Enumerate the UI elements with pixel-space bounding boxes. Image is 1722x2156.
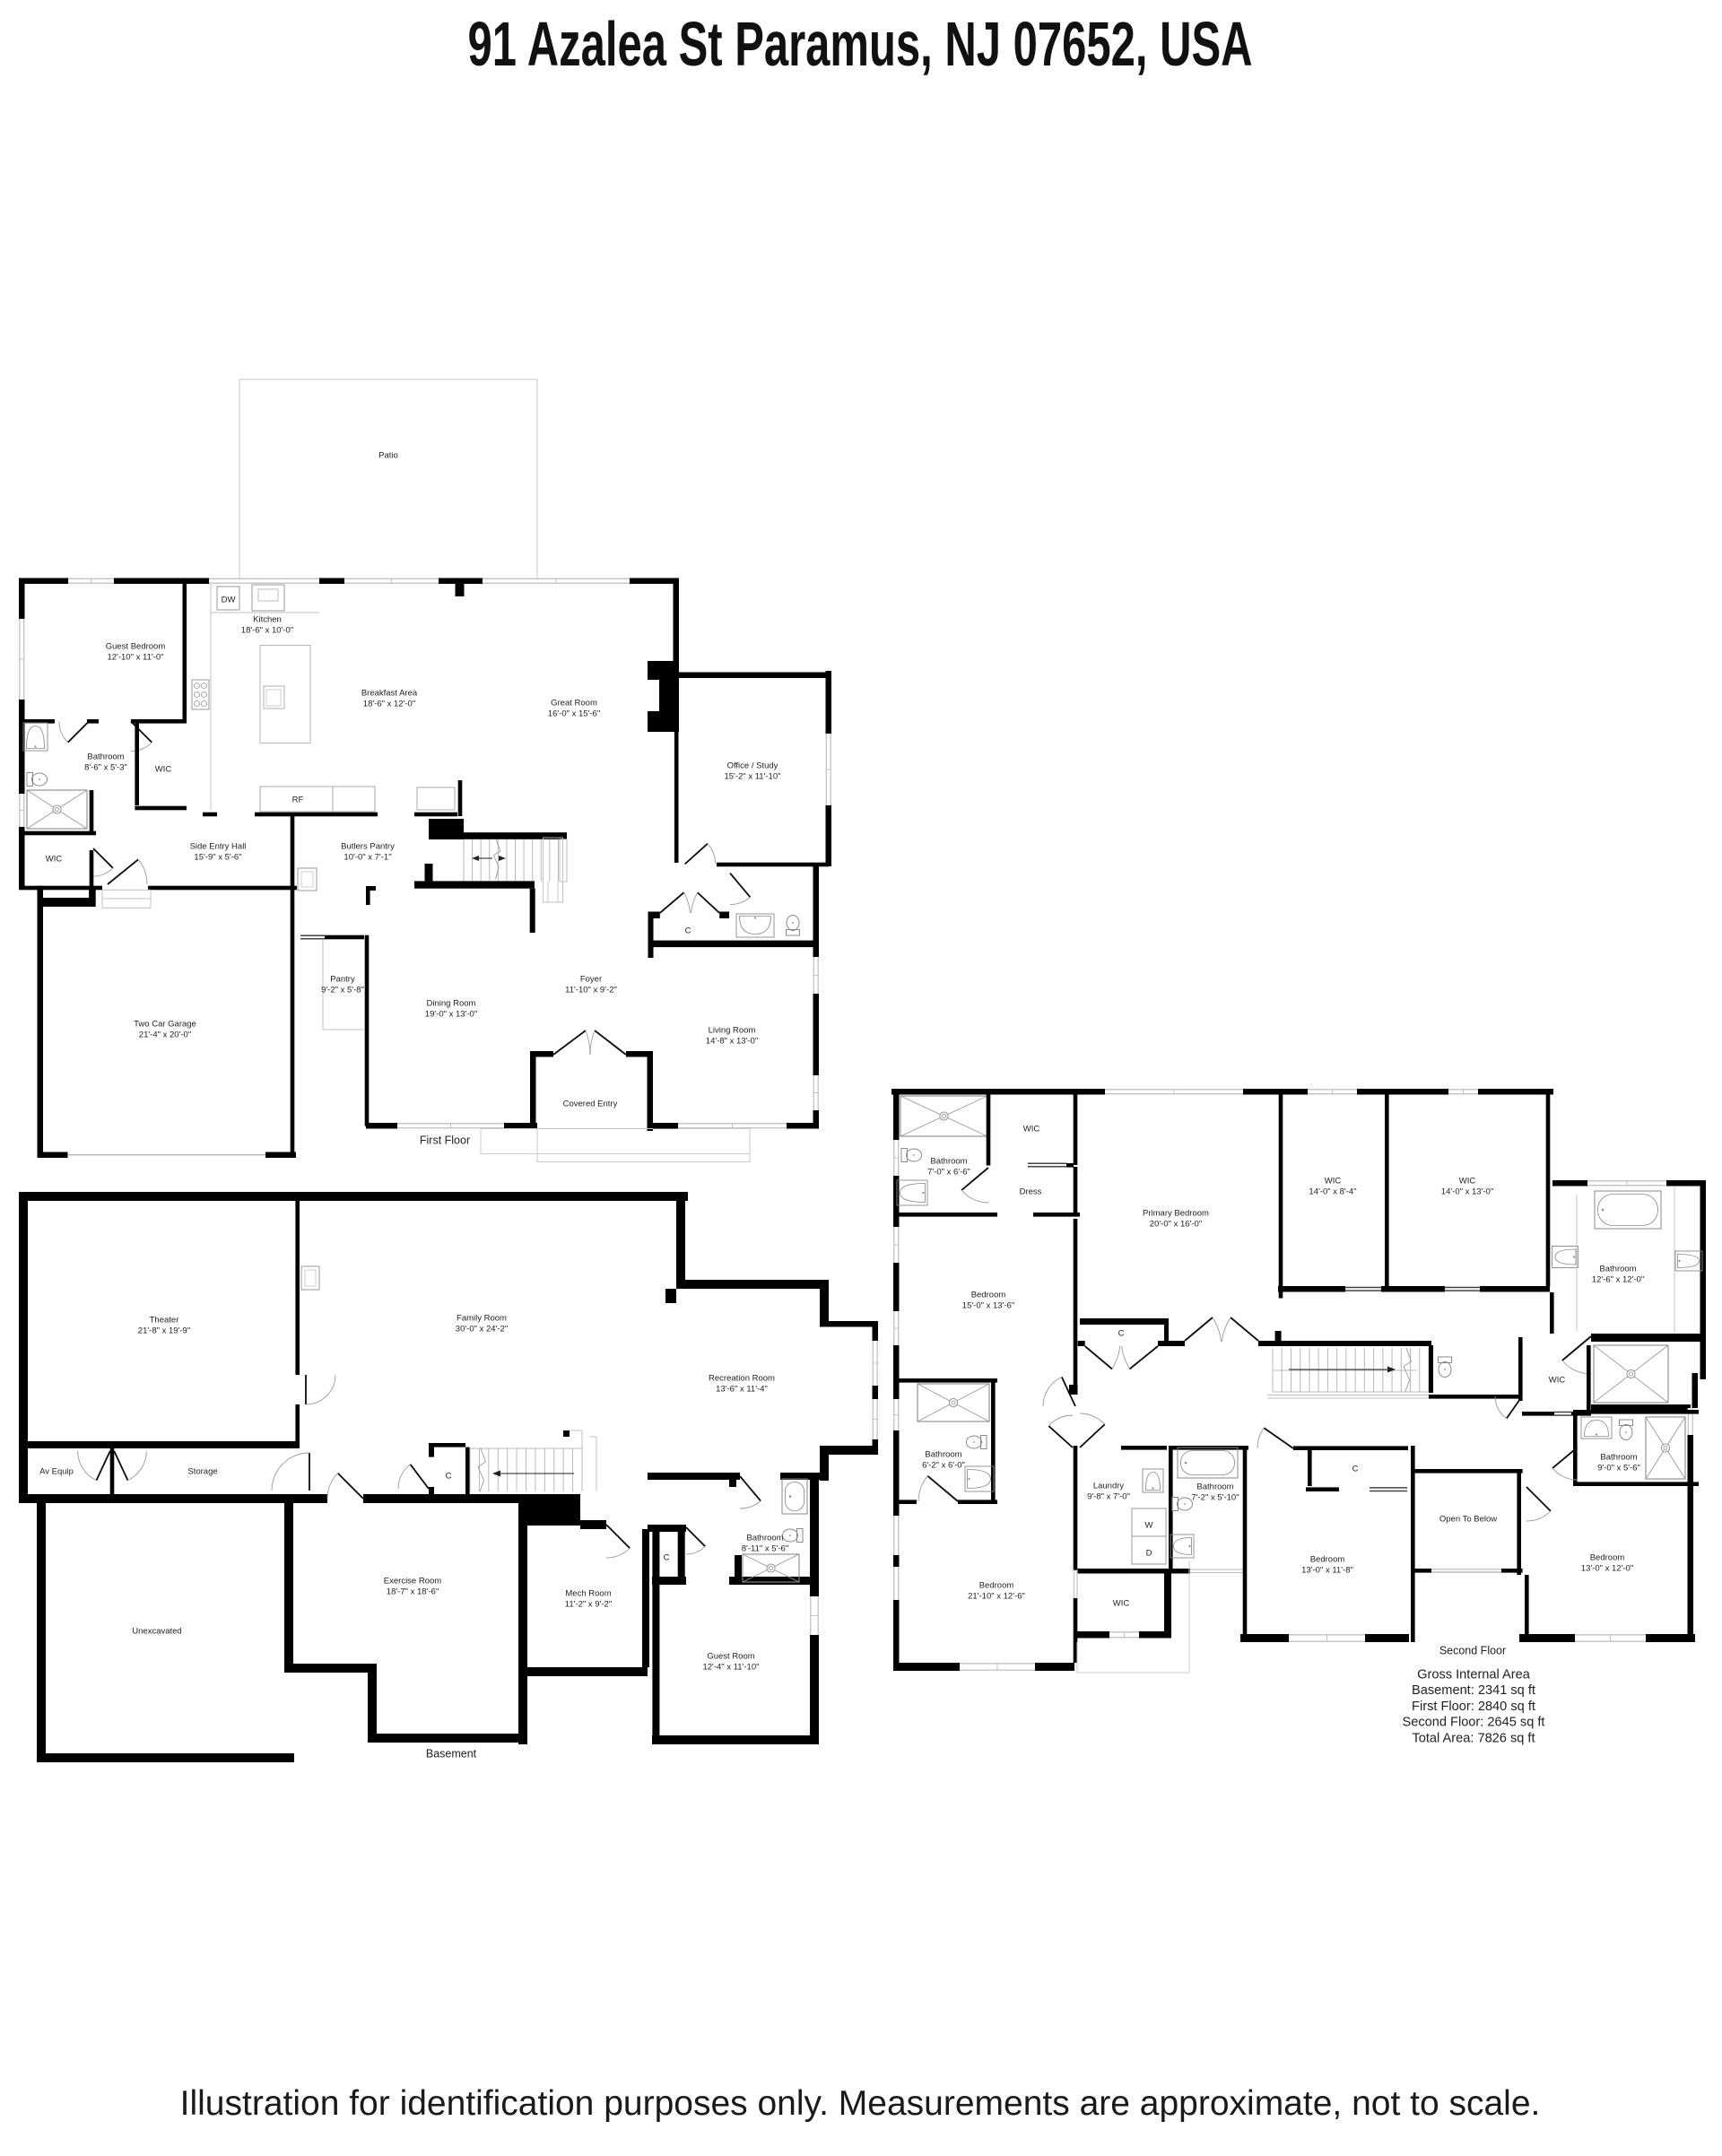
svg-text:Bathroom: Bathroom [1600, 1452, 1637, 1462]
svg-text:Bathroom: Bathroom [925, 1449, 961, 1459]
svg-text:Bathroom: Bathroom [930, 1156, 967, 1166]
svg-text:Bedroom: Bedroom [971, 1290, 1006, 1300]
svg-text:11'-2" x 9'-2": 11'-2" x 9'-2" [565, 1600, 612, 1610]
svg-text:Illustration for identificatio: Illustration for identification purposes… [180, 2084, 1541, 2123]
svg-text:18'-7" x 18'-6": 18'-7" x 18'-6" [387, 1587, 439, 1597]
svg-text:21'-8" x 19'-9": 21'-8" x 19'-9" [138, 1326, 190, 1336]
svg-text:Office / Study: Office / Study [727, 761, 778, 770]
svg-text:Second Floor: Second Floor [1439, 1644, 1506, 1656]
svg-text:Bedroom: Bedroom [979, 1580, 1014, 1590]
svg-text:Great Room: Great Room [551, 698, 597, 708]
svg-text:WIC: WIC [1549, 1375, 1566, 1385]
svg-text:10'-0" x 7'-1": 10'-0" x 7'-1" [344, 853, 391, 863]
svg-text:Primary Bedroom: Primary Bedroom [1143, 1208, 1209, 1218]
svg-text:WIC: WIC [1113, 1598, 1130, 1608]
svg-text:Pantry: Pantry [330, 974, 355, 984]
svg-text:Laundry: Laundry [1093, 1481, 1125, 1491]
svg-text:Breakfast Area: Breakfast Area [361, 688, 418, 698]
svg-text:8'-6" x 5'-3": 8'-6" x 5'-3" [84, 763, 127, 773]
svg-text:21'-10" x 12'-6": 21'-10" x 12'-6" [968, 1592, 1025, 1602]
svg-text:C: C [446, 1471, 452, 1481]
svg-text:16'-0" x 15'-6": 16'-0" x 15'-6" [548, 709, 600, 719]
svg-text:14'-0" x 8'-4": 14'-0" x 8'-4" [1309, 1187, 1356, 1197]
svg-text:WIC: WIC [155, 764, 172, 774]
svg-text:9'-0" x 5'-6": 9'-0" x 5'-6" [1597, 1464, 1640, 1474]
svg-text:12'-4" x 11'-10": 12'-4" x 11'-10" [702, 1663, 759, 1673]
svg-text:Covered Entry: Covered Entry [563, 1099, 618, 1108]
svg-text:Patio: Patio [378, 450, 398, 460]
svg-text:Bathroom: Bathroom [1599, 1264, 1636, 1274]
svg-text:9'-8" x 7'-0": 9'-8" x 7'-0" [1087, 1492, 1130, 1502]
svg-text:Bathroom: Bathroom [87, 752, 124, 761]
svg-text:Gross Internal Area: Gross Internal Area [1417, 1668, 1531, 1682]
svg-text:C: C [664, 1552, 670, 1562]
svg-text:21'-4" x 20'-0": 21'-4" x 20'-0" [139, 1030, 191, 1040]
svg-text:Guest Bedroom: Guest Bedroom [106, 641, 166, 651]
svg-text:Second Floor: 2645 sq ft: Second Floor: 2645 sq ft [1402, 1716, 1544, 1730]
svg-text:C: C [685, 926, 691, 935]
svg-text:WIC: WIC [1023, 1124, 1040, 1134]
svg-text:C: C [1118, 1328, 1125, 1338]
svg-text:13'-0" x 11'-8": 13'-0" x 11'-8" [1301, 1566, 1353, 1576]
svg-text:Family Room: Family Room [457, 1313, 507, 1323]
svg-text:RF: RF [292, 795, 304, 804]
svg-text:Av Equip: Av Equip [39, 1466, 74, 1476]
svg-text:12'-6" x 12'-0": 12'-6" x 12'-0" [1592, 1275, 1644, 1285]
svg-text:18'-6" x 10'-0": 18'-6" x 10'-0" [241, 626, 293, 636]
svg-text:Basement: Basement [426, 1747, 477, 1760]
svg-text:13'-6" x 11'-4": 13'-6" x 11'-4" [716, 1385, 768, 1395]
svg-text:Guest Room: Guest Room [707, 1651, 754, 1661]
svg-text:Butlers Pantry: Butlers Pantry [341, 841, 395, 851]
svg-text:Mech Room: Mech Room [565, 1588, 611, 1598]
svg-text:19'-0" x 13'-0": 19'-0" x 13'-0" [425, 1010, 477, 1020]
svg-text:14'-0" x 13'-0": 14'-0" x 13'-0" [1441, 1187, 1493, 1197]
svg-text:Storage: Storage [187, 1466, 217, 1476]
svg-text:15'-0" x 13'-6": 15'-0" x 13'-6" [962, 1301, 1014, 1311]
svg-text:15'-2" x 11'-10": 15'-2" x 11'-10" [724, 772, 780, 782]
svg-text:15'-9" x 5'-6": 15'-9" x 5'-6" [194, 853, 241, 863]
svg-text:7'-0" x 6'-6": 7'-0" x 6'-6" [927, 1168, 970, 1178]
svg-text:Bathroom: Bathroom [1196, 1482, 1233, 1491]
svg-text:Bedroom: Bedroom [1590, 1552, 1625, 1562]
svg-text:20'-0" x 16'-0": 20'-0" x 16'-0" [1150, 1220, 1202, 1230]
svg-text:Dining Room: Dining Room [427, 998, 476, 1008]
svg-text:Two Car Garage: Two Car Garage [134, 1019, 196, 1029]
svg-text:Bedroom: Bedroom [1310, 1554, 1345, 1564]
svg-text:WIC: WIC [1459, 1176, 1476, 1186]
svg-text:13'-0" x 12'-0": 13'-0" x 12'-0" [1581, 1564, 1633, 1574]
svg-text:12'-10" x 11'-0": 12'-10" x 11'-0" [107, 653, 163, 663]
svg-text:14'-8" x 13'-0": 14'-8" x 13'-0" [706, 1037, 758, 1047]
svg-text:Total Area: 7826 sq ft: Total Area: 7826 sq ft [1412, 1731, 1535, 1745]
svg-text:Bathroom: Bathroom [746, 1533, 783, 1543]
svg-text:7'-2" x 5'-10": 7'-2" x 5'-10" [1191, 1493, 1239, 1503]
svg-text:Side Entry Hall: Side Entry Hall [190, 841, 247, 851]
svg-text:Open To Below: Open To Below [1439, 1514, 1497, 1524]
svg-text:Exercise Room: Exercise Room [384, 1576, 441, 1586]
svg-text:DW: DW [222, 595, 236, 604]
svg-text:6'-2" x 6'-0": 6'-2" x 6'-0" [922, 1461, 965, 1471]
svg-text:C: C [1352, 1464, 1359, 1474]
svg-text:Unexcavated: Unexcavated [132, 1626, 181, 1636]
svg-text:30'-0" x 24'-2": 30'-0" x 24'-2" [456, 1325, 508, 1334]
svg-text:Recreation Room: Recreation Room [709, 1373, 775, 1383]
svg-text:First Floor: First Floor [420, 1134, 470, 1146]
svg-text:WIC: WIC [46, 854, 63, 864]
svg-text:Kitchen: Kitchen [253, 614, 282, 624]
svg-text:D: D [1146, 1548, 1152, 1558]
svg-text:W: W [1145, 1520, 1153, 1530]
svg-text:91 Azalea St Paramus, NJ 07652: 91 Azalea St Paramus, NJ 07652, USA [467, 8, 1252, 79]
svg-text:8'-11" x 5'-6": 8'-11" x 5'-6" [742, 1544, 788, 1554]
svg-text:18'-6" x 12'-0": 18'-6" x 12'-0" [363, 700, 415, 709]
svg-text:Foyer: Foyer [580, 974, 602, 984]
svg-text:Basement: 2341 sq ft: Basement: 2341 sq ft [1412, 1683, 1535, 1698]
svg-text:11'-10" x 9'-2": 11'-10" x 9'-2" [565, 986, 617, 995]
svg-text:Living Room: Living Room [709, 1025, 756, 1035]
svg-text:First Floor: 2840 sq ft: First Floor: 2840 sq ft [1412, 1700, 1535, 1714]
svg-text:WIC: WIC [1325, 1176, 1342, 1186]
svg-text:Theater: Theater [150, 1315, 179, 1325]
svg-text:Dress: Dress [1020, 1187, 1042, 1196]
svg-text:9'-2" x 5'-8": 9'-2" x 5'-8" [321, 986, 364, 995]
